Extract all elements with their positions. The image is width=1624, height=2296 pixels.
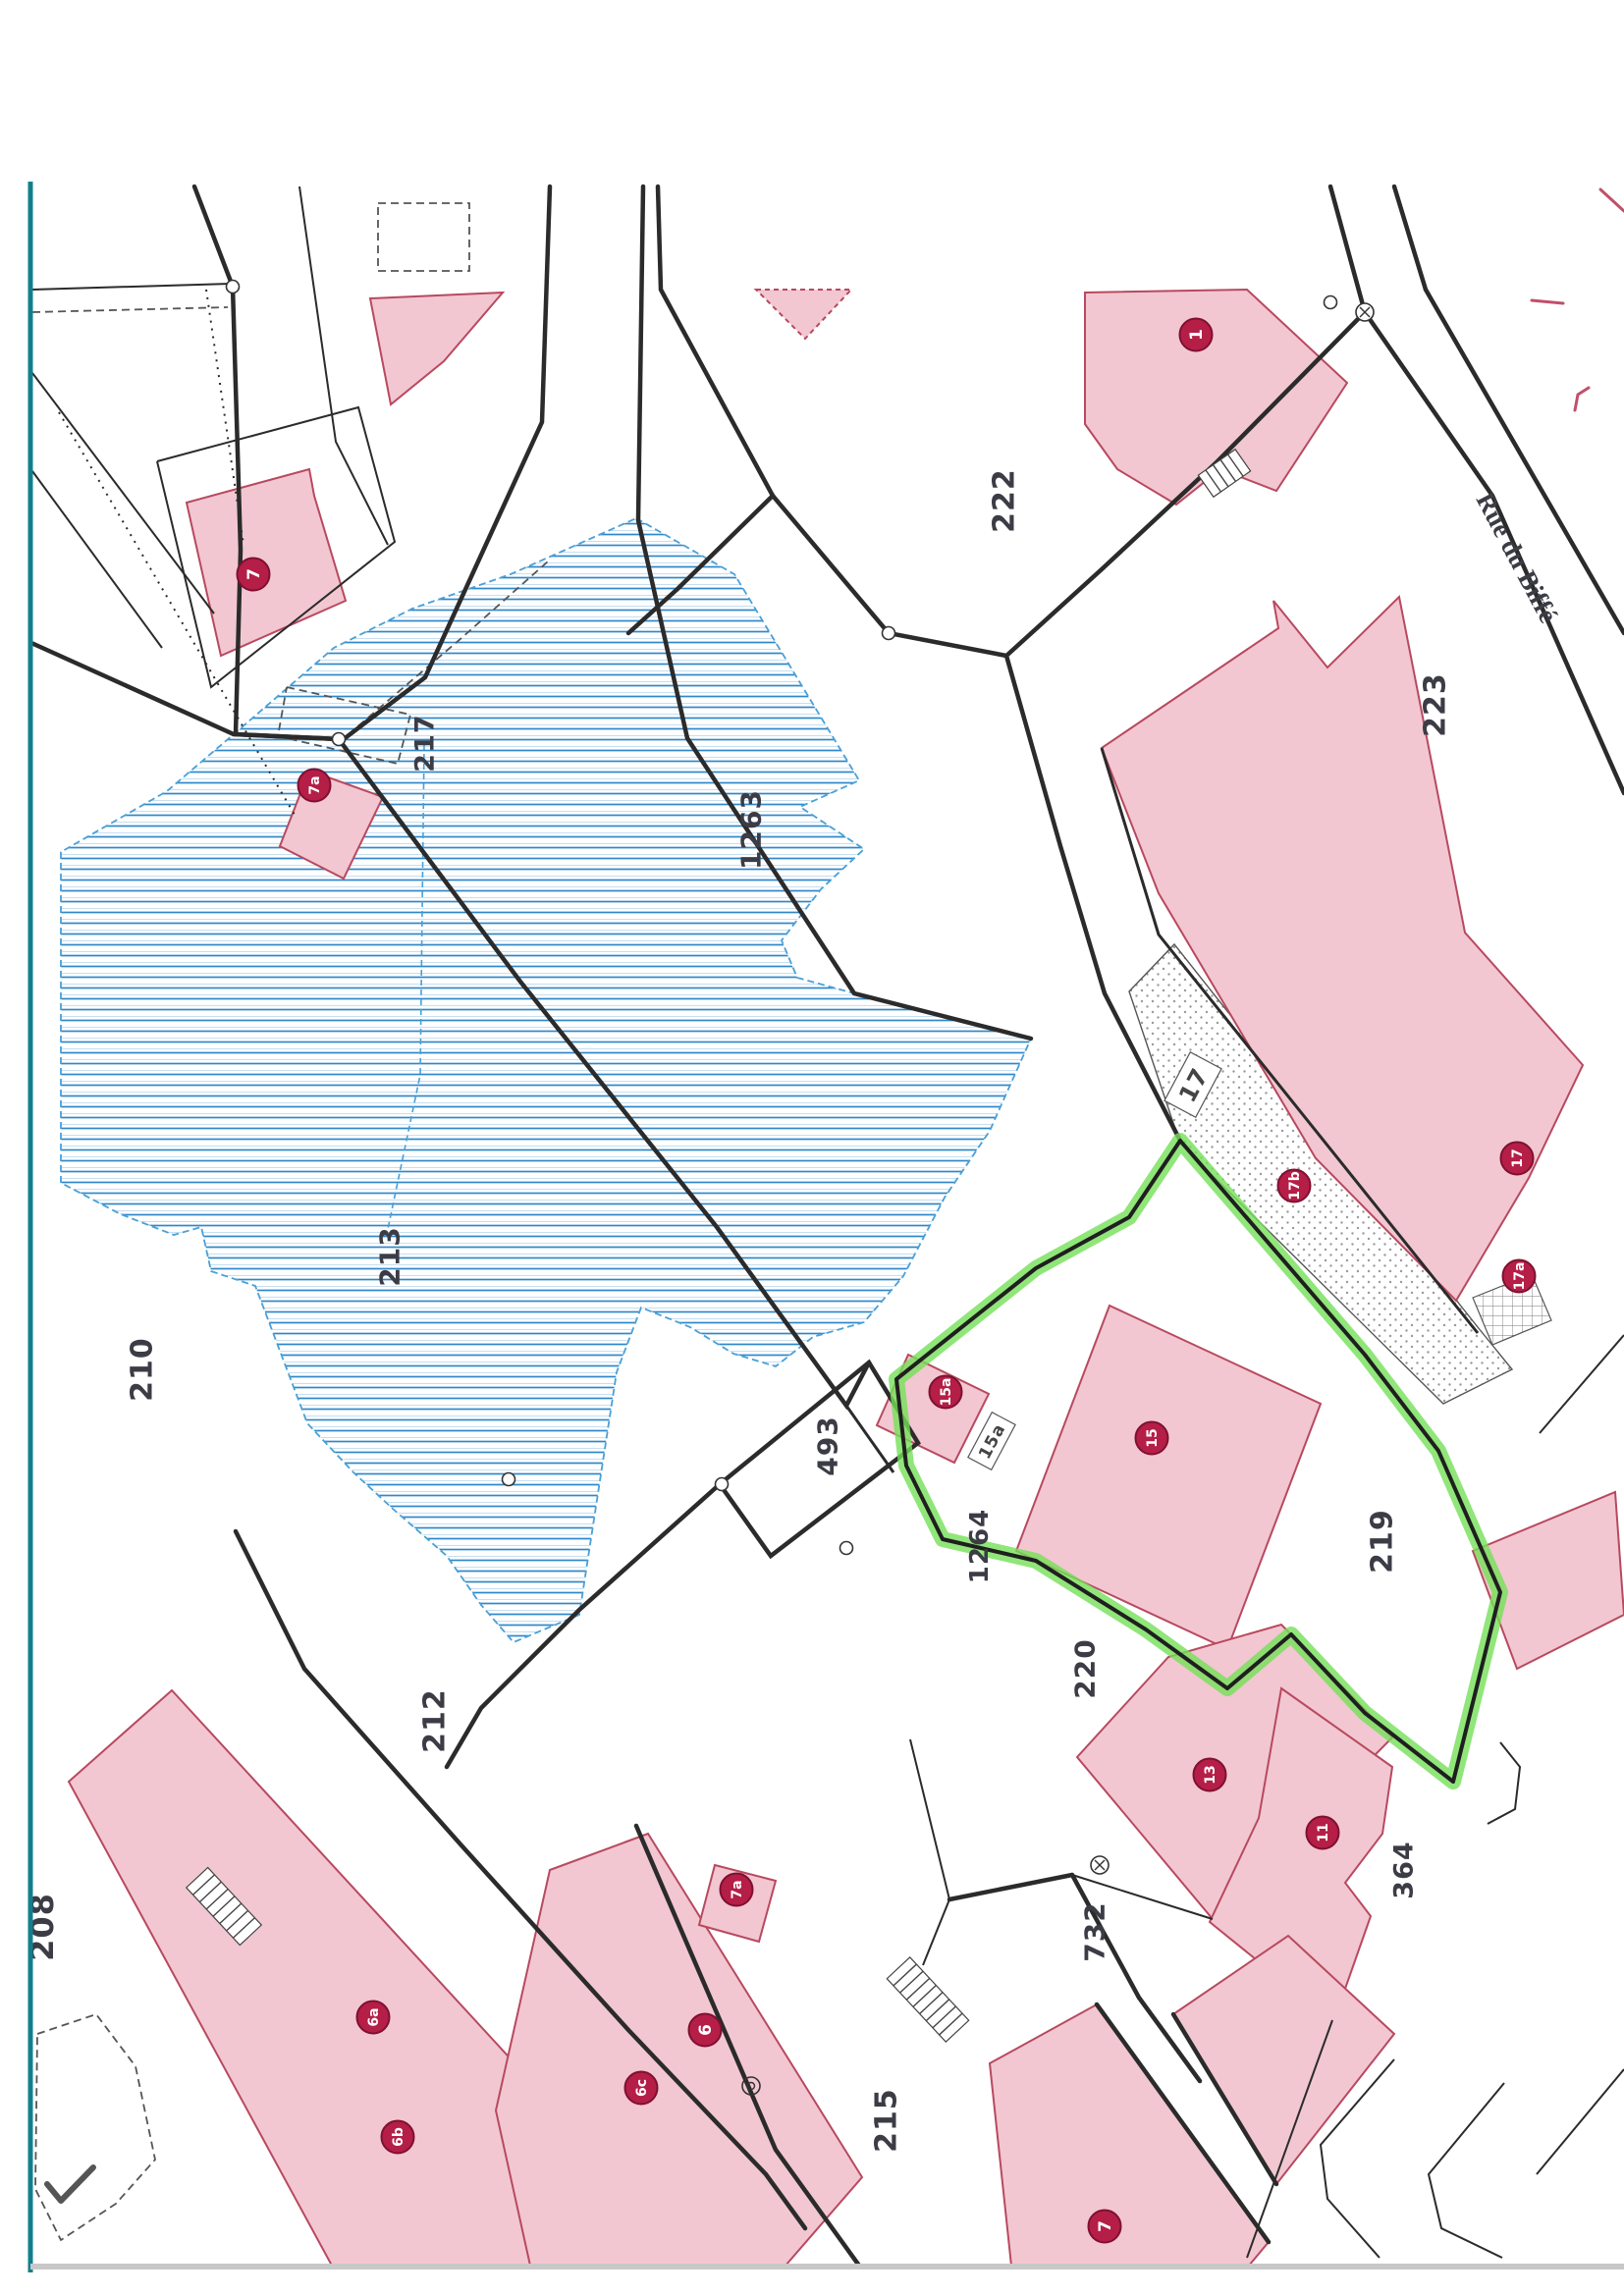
survey-point-icon [227, 281, 240, 294]
house-number-badge-15: 15 [1136, 1422, 1168, 1455]
parcel-label-222: 222 [988, 468, 1022, 533]
survey-point-icon [333, 733, 346, 746]
parcel-label-210: 210 [126, 1337, 160, 1402]
map-canvas: 1715a22222321712632132102124931264219220… [0, 0, 1624, 2296]
parcel-line-thin [32, 471, 162, 648]
badge-number: 6a [366, 2007, 382, 2026]
cadastral-map-page: 1715a22222321712632132102124931264219220… [0, 0, 1624, 2296]
parcel-label-219: 219 [1366, 1509, 1400, 1574]
survey-point-icon [883, 627, 895, 640]
parcel-line-thin [910, 1739, 949, 1965]
badge-number: 6b [391, 2127, 406, 2147]
cross-circle-icon [1091, 1856, 1109, 1874]
parcel-label-213: 213 [374, 1226, 406, 1286]
parcel-label-223: 223 [1419, 672, 1453, 737]
badge-number: 1 [1187, 329, 1207, 341]
stairs-outline [887, 1957, 968, 2042]
parcel-label-732: 732 [1079, 1901, 1111, 1961]
survey-point-icon [840, 1542, 853, 1555]
survey-point-icon [1325, 296, 1337, 309]
parcel-line-thick [194, 187, 339, 739]
house-number-badge-6a: 6a [357, 2002, 390, 2034]
parcel-line-thin [32, 373, 214, 614]
badge-number: 17a [1512, 1262, 1528, 1291]
house-number-badge-7a: 7a [721, 1874, 753, 1906]
badge-number: 6c [634, 2079, 650, 2097]
parcel-line-thick [949, 1875, 1072, 1899]
house-number-badge-13: 13 [1194, 1759, 1226, 1791]
parcel-label-212: 212 [418, 1688, 453, 1753]
house-number-badge-6c: 6c [625, 2072, 658, 2105]
parcel-line-thick [1394, 187, 1426, 290]
badge-number: 15a [939, 1378, 954, 1407]
parcel-line-thin [1540, 1335, 1624, 1433]
badge-number: 13 [1203, 1765, 1218, 1784]
house-number-badge-17b: 17b [1278, 1170, 1311, 1202]
badge-number: 7 [1096, 2220, 1115, 2232]
parcel-line-thin [32, 284, 231, 290]
building-15 [1016, 1306, 1321, 1649]
house-number-badge-15a: 15a [930, 1376, 962, 1409]
badge-number: 7a [307, 775, 323, 794]
parcel-line-thin [1488, 1742, 1520, 1824]
parcel-label-1263: 1263 [735, 789, 768, 870]
parcel-label-220: 220 [1069, 1638, 1102, 1698]
building-7 [187, 469, 346, 656]
parcel-line-thick [1330, 187, 1365, 312]
parcel-line-dashed [35, 2014, 155, 2240]
house-number-badge-7: 7 [1089, 2211, 1121, 2243]
survey-point-icon [716, 1478, 729, 1491]
parcel-line-thin [1429, 2083, 1504, 2258]
house-number-badge-6: 6 [689, 2014, 722, 2047]
building-6c [496, 1834, 862, 2266]
survey-point-icon [503, 1473, 515, 1486]
house-number-badge-6b: 6b [382, 2121, 414, 2154]
house-number-badge-17a: 17a [1503, 1260, 1536, 1293]
parcel-label-493: 493 [812, 1415, 844, 1475]
cross-circle-icon [1356, 303, 1374, 321]
badge-number: 17b [1287, 1171, 1303, 1201]
parcel-line-dashed [32, 307, 228, 312]
checkmark-icon [47, 2167, 93, 2201]
red-pen-mark [1575, 388, 1589, 410]
building-7-bottom-b [1173, 1936, 1394, 2184]
house-number-badge-7a: 7a [298, 770, 331, 802]
building-triangle-top [756, 290, 851, 339]
badge-number: 6 [696, 2024, 716, 2036]
red-pen-mark [1532, 300, 1563, 303]
hatched-area [61, 518, 1031, 1642]
badge-number: 7a [730, 1880, 745, 1898]
parcel-label-1264: 1264 [965, 1509, 995, 1583]
red-pen-mark [1600, 189, 1624, 211]
badge-number: 7 [244, 568, 264, 580]
badge-number: 15 [1145, 1428, 1161, 1447]
badge-number: 11 [1316, 1823, 1331, 1842]
house-number-badge-1: 1 [1180, 319, 1213, 351]
parcel-line-thin [1537, 2069, 1624, 2174]
stairs-icon [887, 1957, 968, 2042]
parcel-label-217: 217 [410, 714, 441, 772]
house-number-badge-7: 7 [238, 559, 270, 591]
badge-number: 17 [1510, 1148, 1526, 1167]
parcel-line-dashed [378, 203, 469, 271]
parcel-line-thick [658, 187, 773, 496]
parcel-label-215: 215 [870, 2088, 904, 2153]
parcel-label-364: 364 [1389, 1841, 1420, 1898]
building-top [370, 293, 503, 404]
house-number-badge-17: 17 [1501, 1143, 1534, 1175]
house-number-badge-11: 11 [1307, 1817, 1339, 1849]
